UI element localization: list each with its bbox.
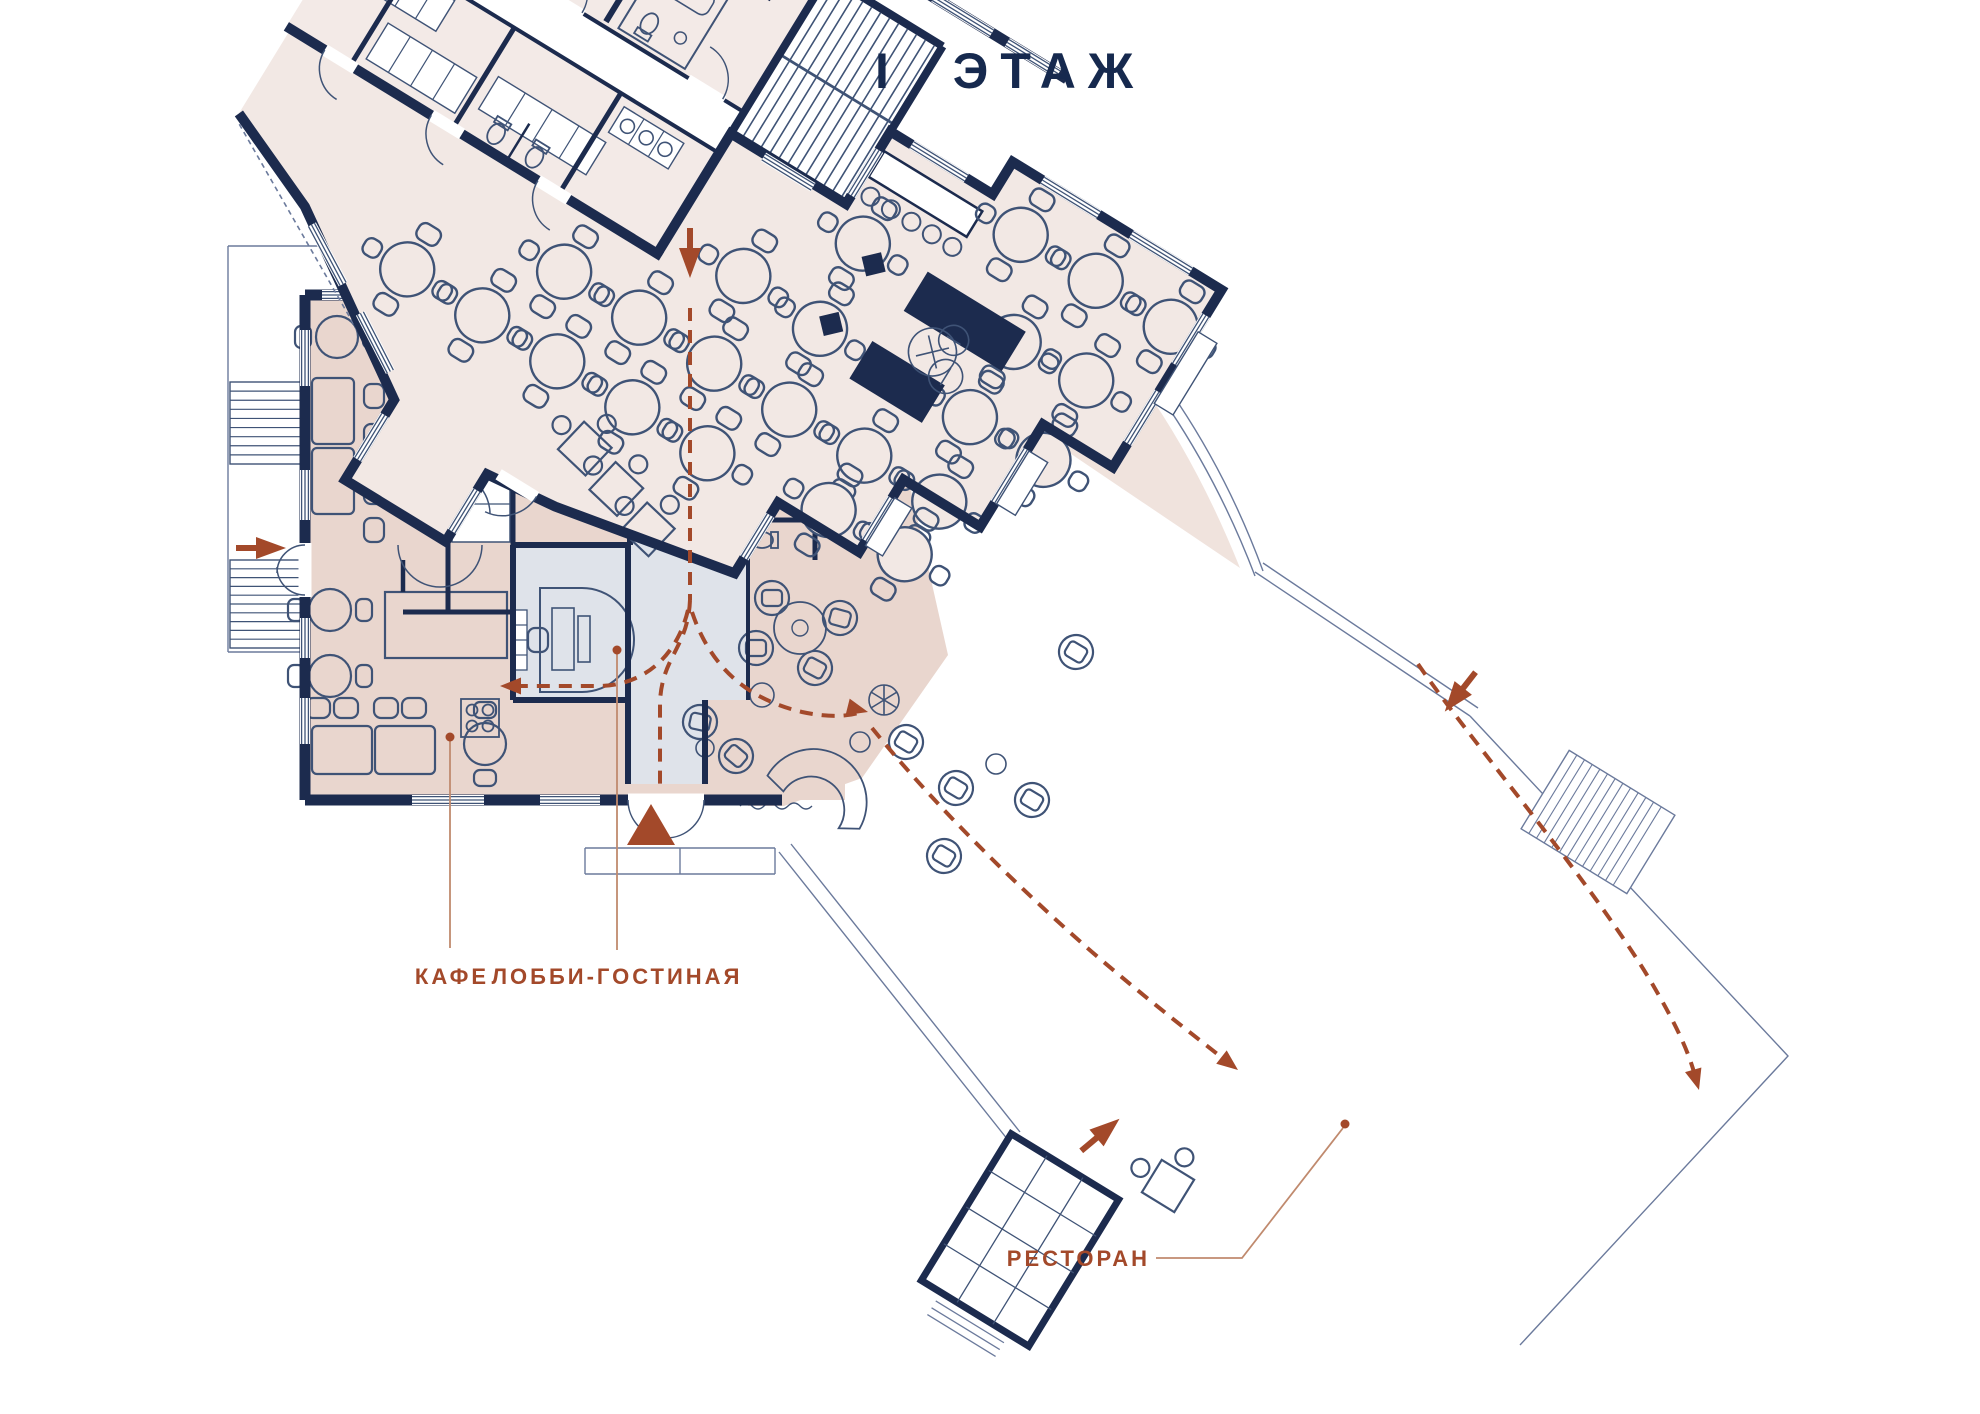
lounge-armchair	[1053, 629, 1100, 676]
lounge-armchair	[933, 765, 980, 812]
label-restaurant: РЕСТОРАН	[1007, 1246, 1150, 1271]
terrace-table	[1122, 1128, 1206, 1212]
leader-dot-cafe	[446, 733, 455, 742]
floor-plan-drawing: I ЭТАЖ КАФЕ ЛОББИ-ГОСТИНАЯ РЕСТОРАН	[0, 0, 1980, 1414]
right-entrance-arrow	[1436, 665, 1484, 718]
main-entrance-triangle	[627, 804, 675, 845]
lounge-armchair	[1009, 777, 1056, 824]
label-cafe: КАФЕ	[415, 964, 489, 989]
label-lobby: ЛОББИ-ГОСТИНАЯ	[492, 964, 743, 989]
left-entrance-arrow	[236, 537, 286, 559]
route-arrow	[1685, 1067, 1707, 1092]
restaurant-entrance-arrow	[1074, 1110, 1126, 1159]
leader-dot-lobby	[613, 646, 622, 655]
leader-dot-restaurant	[1341, 1120, 1350, 1129]
lounge-armchair	[921, 833, 968, 880]
floor-plan-page: I ЭТАЖ КАФЕ ЛОББИ-ГОСТИНАЯ РЕСТОРАН	[0, 0, 1980, 1414]
route-arrow	[1216, 1050, 1243, 1076]
exterior-stair-hatch	[1521, 750, 1675, 893]
page-title: I ЭТАЖ	[875, 43, 1145, 99]
